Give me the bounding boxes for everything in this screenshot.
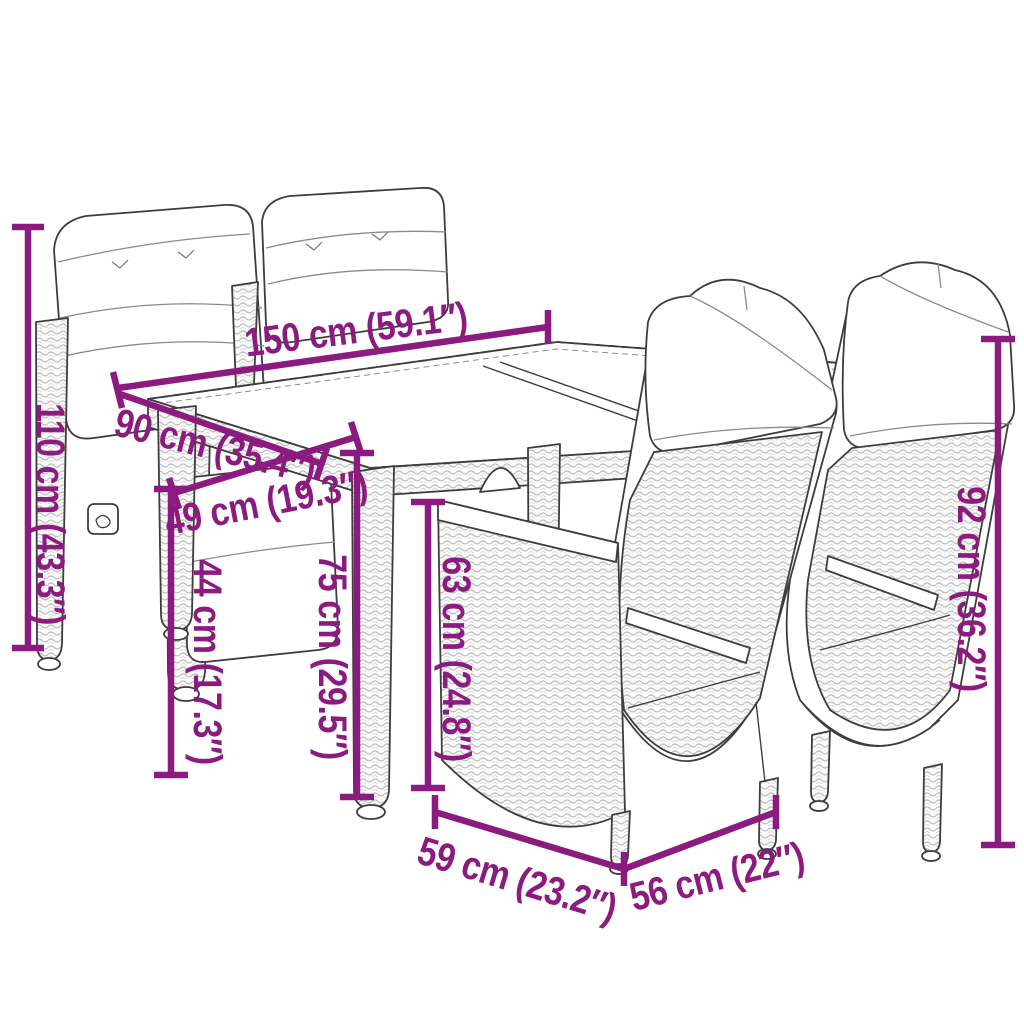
dimension-diagram: 150 cm (59.1″) 90 cm (35.4″) 110 cm (43.… [0, 0, 1024, 1024]
dim-label-92cm: 92 cm (36.2″) [951, 468, 991, 710]
dim-label-75cm: 75 cm (29.5″) [312, 536, 352, 778]
dim-label-63cm-text: 63 cm (24.8″) [436, 556, 476, 761]
dim-label-110cm: 110 cm (43.3″) [30, 383, 70, 644]
dim-label-44cm-text: 44 cm (17.3″) [187, 559, 227, 764]
dim-label-92cm-text: 92 cm (36.2″) [951, 486, 991, 691]
dim-label-44cm: 44 cm (17.3″) [187, 541, 227, 783]
dim-label-75cm-text: 75 cm (29.5″) [312, 554, 352, 759]
recline-lever-icon [88, 504, 118, 534]
dim-label-63cm: 63 cm (24.8″) [436, 538, 476, 780]
dim-label-110cm-text: 110 cm (43.3″) [30, 403, 70, 625]
